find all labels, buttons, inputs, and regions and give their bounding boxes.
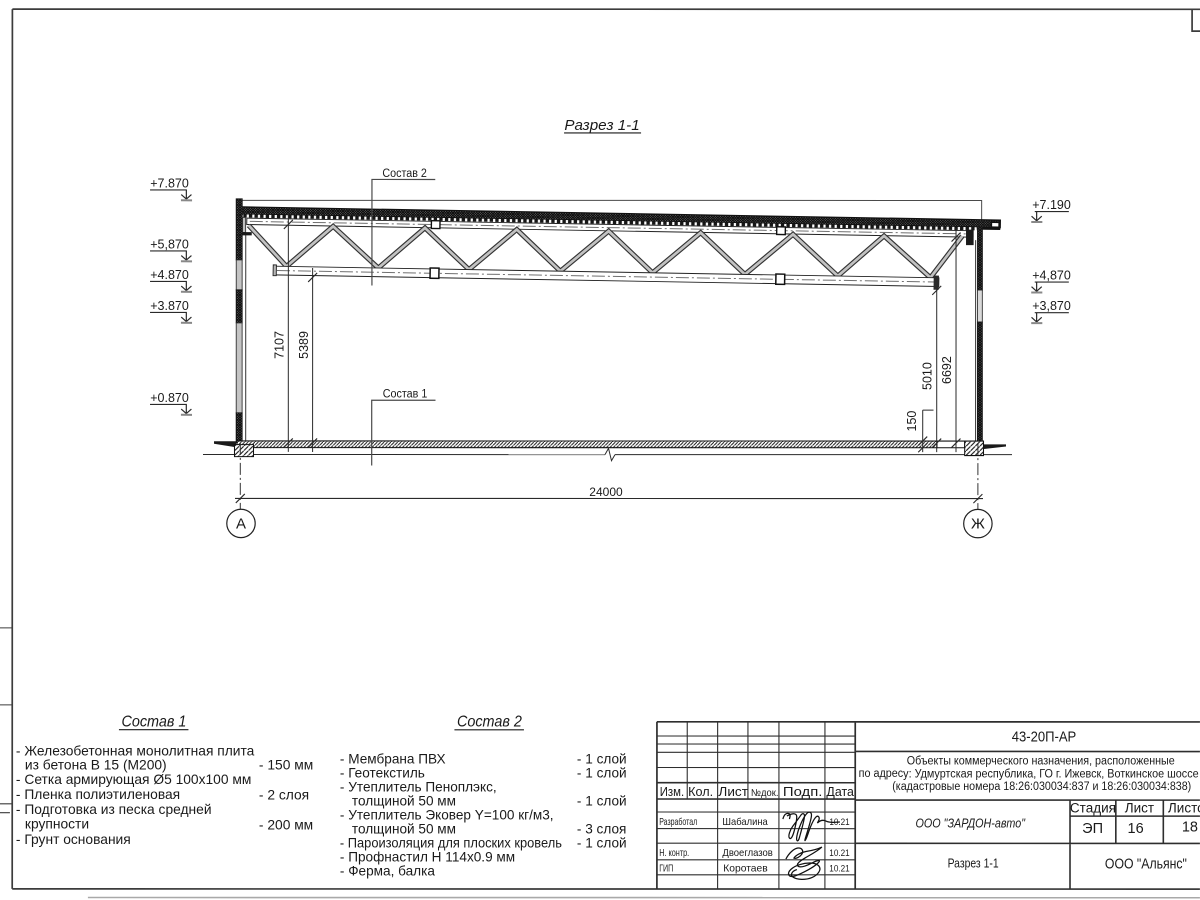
svg-text:- Профнастил Н 114х0.9 мм: - Профнастил Н 114х0.9 мм bbox=[340, 849, 515, 864]
svg-text:5010: 5010 bbox=[921, 362, 935, 390]
svg-text:43-20П-АР: 43-20П-АР bbox=[1012, 730, 1077, 746]
svg-text:+0.870: +0.870 bbox=[150, 391, 189, 405]
svg-text:- 3 слоя: - 3 слоя bbox=[577, 821, 626, 836]
svg-text:- Мембрана ПВХ: - Мембрана ПВХ bbox=[340, 751, 446, 766]
svg-text:- Пароизоляция для плоских кро: - Пароизоляция для плоских кровель bbox=[340, 835, 562, 850]
svg-text:Дата: Дата bbox=[826, 784, 854, 799]
svg-text:крупности: крупности bbox=[25, 816, 89, 831]
svg-text:+3,870: +3,870 bbox=[1032, 299, 1071, 313]
svg-text:ООО "ЗАРДОН-авто": ООО "ЗАРДОН-авто" bbox=[916, 816, 1027, 831]
svg-text:- Ферма, балка: - Ферма, балка bbox=[340, 863, 435, 878]
svg-text:- Утеплитель Пеноплэкс,: - Утеплитель Пеноплэкс, bbox=[340, 779, 497, 794]
svg-text:+4.870: +4.870 bbox=[150, 268, 189, 282]
svg-text:24000: 24000 bbox=[589, 485, 623, 499]
svg-text:Разрез 1-1: Разрез 1-1 bbox=[948, 856, 999, 871]
svg-text:- 1 слой: - 1 слой bbox=[577, 765, 627, 780]
svg-text:толщиной 50 мм: толщиной 50 мм bbox=[352, 793, 456, 808]
svg-text:Шабалина: Шабалина bbox=[722, 816, 767, 828]
svg-text:Листов: Листов bbox=[1168, 801, 1200, 816]
svg-text:Состав 2: Состав 2 bbox=[457, 713, 522, 730]
svg-text:по адресу: Удмуртская республи: по адресу: Удмуртская республика, ГО г. … bbox=[859, 768, 1199, 780]
svg-text:Ж: Ж bbox=[971, 516, 985, 533]
svg-text:10.21: 10.21 bbox=[829, 848, 849, 859]
svg-text:- Сетка армирующая Ø5 100х100: - Сетка армирующая Ø5 100х100 мм bbox=[16, 772, 251, 787]
svg-text:- 150 мм: - 150 мм bbox=[259, 758, 313, 773]
svg-text:- Железобетонная монолитная п: - Железобетонная монолитная плита bbox=[16, 743, 255, 758]
svg-text:Состав 2: Состав 2 bbox=[382, 168, 427, 180]
svg-text:Лист: Лист bbox=[718, 784, 748, 799]
svg-text:18: 18 bbox=[1182, 820, 1198, 836]
svg-text:16: 16 bbox=[1128, 821, 1144, 837]
svg-text:+4,870: +4,870 bbox=[1032, 268, 1071, 282]
svg-text:- 1 слой: - 1 слой bbox=[577, 793, 627, 808]
svg-text:Двоеглазов: Двоеглазов bbox=[722, 847, 773, 859]
svg-text:ГИП: ГИП bbox=[659, 862, 673, 874]
svg-text:- Утеплитель Эковер Y=100 кг/м: - Утеплитель Эковер Y=100 кг/м3, bbox=[340, 807, 554, 822]
svg-text:7107: 7107 bbox=[273, 331, 287, 359]
svg-text:5389: 5389 bbox=[297, 331, 311, 359]
svg-text:- 200 мм: - 200 мм bbox=[259, 817, 313, 832]
svg-text:ООО "Альянс": ООО "Альянс" bbox=[1105, 857, 1187, 873]
svg-text:толщиной 50 мм: толщиной 50 мм bbox=[352, 821, 456, 836]
svg-text:Состав 1: Состав 1 bbox=[121, 713, 186, 730]
svg-text:Коротаев: Коротаев bbox=[723, 862, 768, 874]
svg-text:Разработал: Разработал bbox=[659, 816, 697, 828]
svg-text:150: 150 bbox=[905, 411, 919, 432]
svg-text:+3.870: +3.870 bbox=[150, 299, 189, 313]
svg-text:+5,870: +5,870 bbox=[150, 237, 189, 251]
svg-text:Изм.: Изм. bbox=[660, 784, 684, 799]
svg-text:Н. контр.: Н. контр. bbox=[659, 847, 689, 859]
svg-text:+7.190: +7.190 bbox=[1032, 198, 1071, 212]
svg-text:Состав 1: Состав 1 bbox=[383, 388, 428, 400]
svg-text:- Пленка полиэтиленовая: - Пленка полиэтиленовая bbox=[16, 787, 180, 802]
svg-text:А: А bbox=[236, 516, 246, 533]
svg-text:- Подготовка из песка средней: - Подготовка из песка средней bbox=[16, 802, 212, 817]
svg-text:№док.: №док. bbox=[751, 788, 779, 799]
svg-text:- 2 слоя: - 2 слоя bbox=[259, 787, 309, 802]
svg-text:Лист: Лист bbox=[1125, 801, 1154, 816]
svg-text:из бетона В 15 (М200): из бетона В 15 (М200) bbox=[25, 758, 167, 773]
svg-text:Разрез 1-1: Разрез 1-1 bbox=[564, 117, 639, 134]
svg-text:- Геотекстиль: - Геотекстиль bbox=[340, 765, 425, 780]
svg-text:(кадастровые номера 18:26:0300: (кадастровые номера 18:26:030034:837 и 1… bbox=[892, 781, 1191, 793]
svg-text:- 1 слой: - 1 слой bbox=[577, 751, 627, 766]
svg-text:- Грунт основания: - Грунт основания bbox=[16, 832, 131, 847]
svg-text:Кол.: Кол. bbox=[688, 784, 713, 799]
svg-text:6692: 6692 bbox=[940, 356, 954, 384]
svg-text:Подп.: Подп. bbox=[783, 784, 823, 799]
svg-text:- 1 слой: - 1 слой bbox=[577, 835, 627, 850]
svg-text:ЭП: ЭП bbox=[1082, 821, 1103, 837]
svg-text:Стадия: Стадия bbox=[1070, 801, 1116, 816]
svg-text:Объекты коммерческого назначен: Объекты коммерческого назначения, распол… bbox=[907, 756, 1175, 768]
svg-text:+7.870: +7.870 bbox=[150, 176, 189, 190]
svg-text:10.21: 10.21 bbox=[829, 863, 849, 874]
